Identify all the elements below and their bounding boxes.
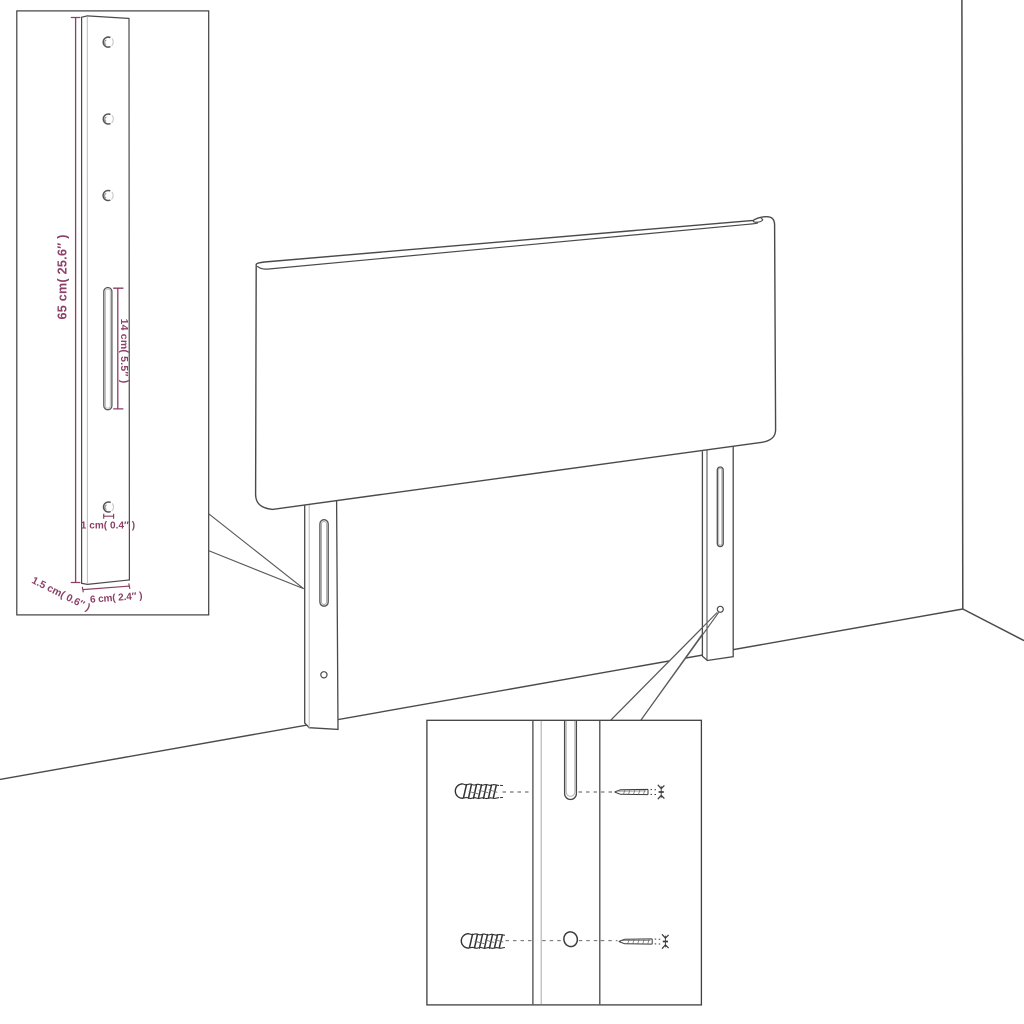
svg-text:65 cm( 25.6″ ): 65 cm( 25.6″ ) (56, 234, 70, 319)
svg-text:1 cm( 0.4″ ): 1 cm( 0.4″ ) (81, 521, 135, 532)
svg-text:14 cm( 5.5″ ): 14 cm( 5.5″ ) (118, 319, 130, 384)
